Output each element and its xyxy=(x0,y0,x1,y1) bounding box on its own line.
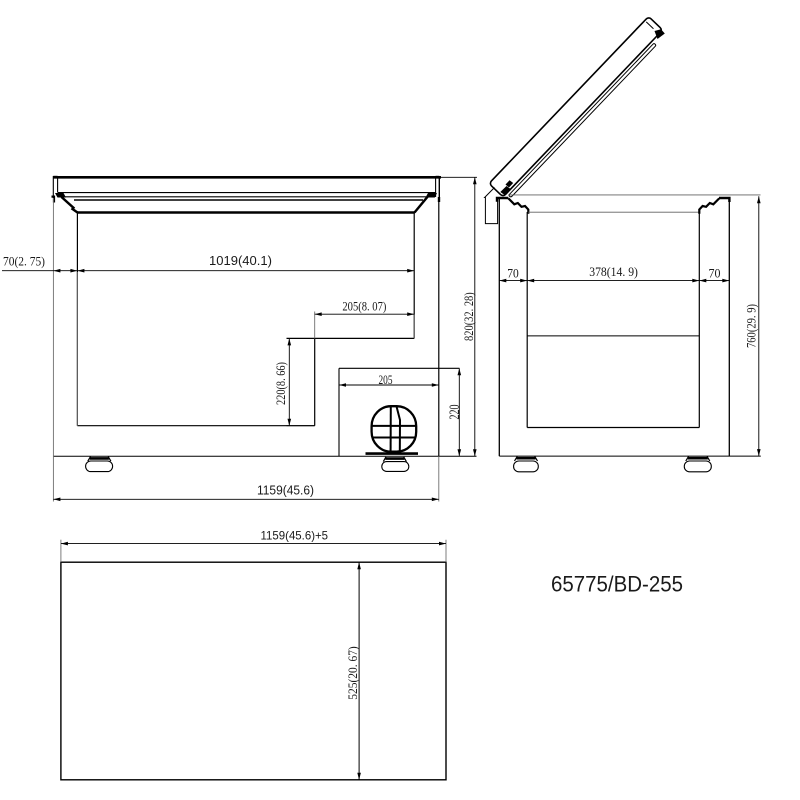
svg-text:70(2. 75): 70(2. 75) xyxy=(3,253,45,268)
svg-text:1159(45.6): 1159(45.6) xyxy=(257,483,314,497)
svg-text:220(8. 66): 220(8. 66) xyxy=(273,362,288,405)
svg-text:65775/BD-255: 65775/BD-255 xyxy=(551,572,683,597)
svg-text:760(29. 9): 760(29. 9) xyxy=(743,304,758,348)
svg-text:220: 220 xyxy=(447,405,463,420)
svg-text:378(14. 9): 378(14. 9) xyxy=(589,264,638,279)
svg-text:70: 70 xyxy=(507,265,519,280)
svg-text:525(20. 67): 525(20. 67) xyxy=(345,646,360,700)
svg-text:820(32. 28): 820(32. 28) xyxy=(461,292,476,341)
svg-text:1019(40.1): 1019(40.1) xyxy=(209,254,272,268)
svg-text:70: 70 xyxy=(709,265,721,280)
svg-text:1159(45.6)+5: 1159(45.6)+5 xyxy=(261,529,329,543)
svg-text:205(8. 07): 205(8. 07) xyxy=(342,298,386,313)
svg-text:205: 205 xyxy=(379,372,393,387)
